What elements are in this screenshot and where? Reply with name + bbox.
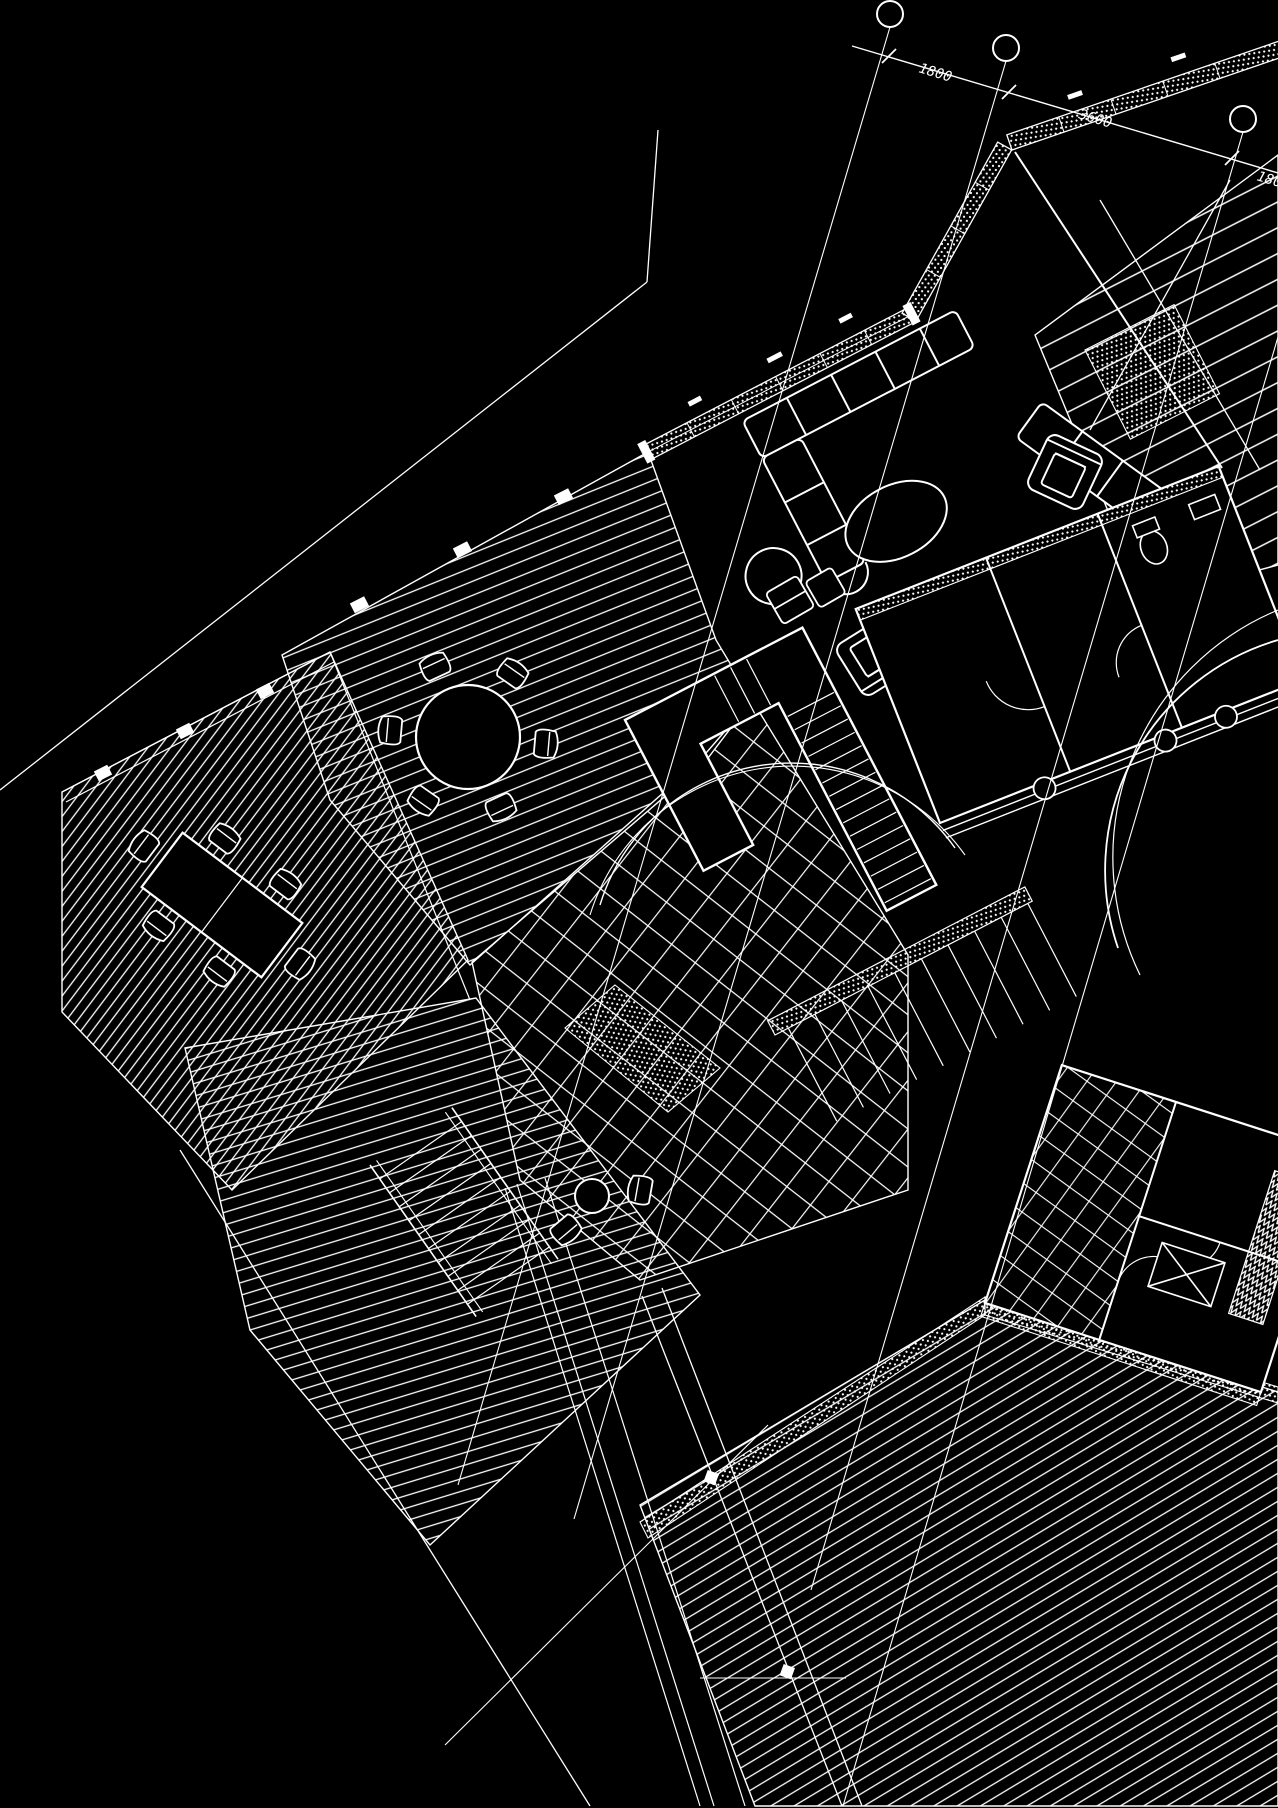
floorplan-canvas: 1800 3600 1800 <box>0 0 1278 1808</box>
micro-dimension-mark <box>688 396 703 407</box>
round-dining-table <box>416 685 520 789</box>
dining-chair <box>534 729 559 759</box>
blueprint-page: 1800 3600 1800 <box>0 0 1278 1808</box>
micro-dimension-mark <box>1170 52 1186 62</box>
grid-bubble-1 <box>877 1 903 27</box>
micro-dimension-mark <box>838 313 853 324</box>
boundary-line-north-stub <box>647 130 658 282</box>
micro-dimension-mark <box>1067 90 1083 100</box>
dimension-text-1: 1800 <box>917 61 954 86</box>
window-wall-b <box>902 142 1012 321</box>
grid-bubble-3 <box>1230 106 1256 132</box>
dimension-labels: 1800 3600 1800 <box>917 61 1278 194</box>
dining-chair <box>377 715 402 745</box>
grid-bubble-2 <box>993 35 1019 61</box>
deck-areas <box>62 155 1278 1806</box>
bistro-table <box>575 1179 609 1213</box>
micro-dimension-mark <box>766 351 783 363</box>
